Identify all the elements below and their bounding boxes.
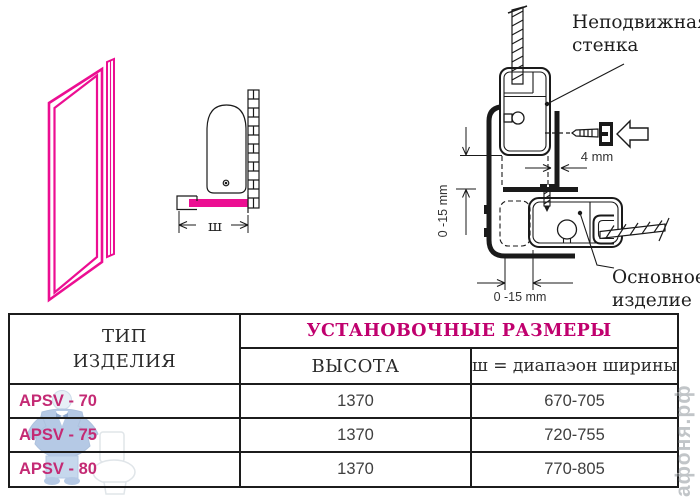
fixed-wall-leader-line [547,64,624,104]
dim-side-label: 0 -15 mm [436,185,450,238]
fixed-wall-profile [500,68,550,155]
dim-bottom-label: 0 -15 mm [494,290,547,304]
installation-diagram: Неподвижная стенка Основное изделие 4 mm… [430,0,700,312]
table-row-width-range: 770-805 [470,451,677,486]
width-symbol-label: ш [208,217,222,235]
product-panel-topview [189,199,248,207]
panel-3d-diagram [40,55,125,310]
bathtub-topview-diagram: ш [170,85,265,240]
type-header-line1: ТИП [102,324,147,349]
main-product-label-line1: Основное [612,267,700,288]
fixed-wall-label-line2: стенка [572,35,638,56]
dim-4mm-label: 4 mm [581,149,614,164]
product-spec-page: { "colors": { "magenta": "#ec0e92", "tab… [0,0,700,500]
main-product-leader-line [580,213,614,268]
height-column-header: ВЫСОТА [239,347,470,383]
table-row-width-range: 670-705 [470,383,677,417]
type-column-header: ТИП ИЗДЕЛИЯ [10,315,239,383]
table-row-height: 1370 [239,383,470,417]
fixing-screw [544,189,550,212]
main-product-glass [600,218,669,241]
arrow-left-icon [617,121,648,147]
bathtub [207,105,246,193]
site-watermark: афоня.рф [672,382,696,497]
width-range-column-header: ш = диапаэон ширины [470,347,677,383]
installation-sizes-header: УСТАНОВОЧНЫЕ РАЗМЕРЫ [239,315,677,347]
brick-wall [248,90,259,208]
table-row-model: APSV - 75 [10,417,239,451]
adjustment-dashes [500,156,548,246]
table-row-height: 1370 [239,451,470,486]
main-product-label-line2: изделие [612,290,692,311]
side-adjust-dimension [456,127,502,235]
table-row-height: 1370 [239,417,470,451]
table-row-model: APSV - 70 [10,383,239,417]
glass-panel-outline [49,59,114,300]
spec-table: ТИП ИЗДЕЛИЯ УСТАНОВОЧНЫЕ РАЗМЕРЫ ВЫСОТА … [8,313,679,488]
table-row-width-range: 720-755 [470,417,677,451]
type-header-line2: ИЗДЕЛИЯ [73,349,176,374]
fixed-wall-label-line1: Неподвижная [572,12,700,33]
table-row-model: APSV - 80 [10,451,239,486]
